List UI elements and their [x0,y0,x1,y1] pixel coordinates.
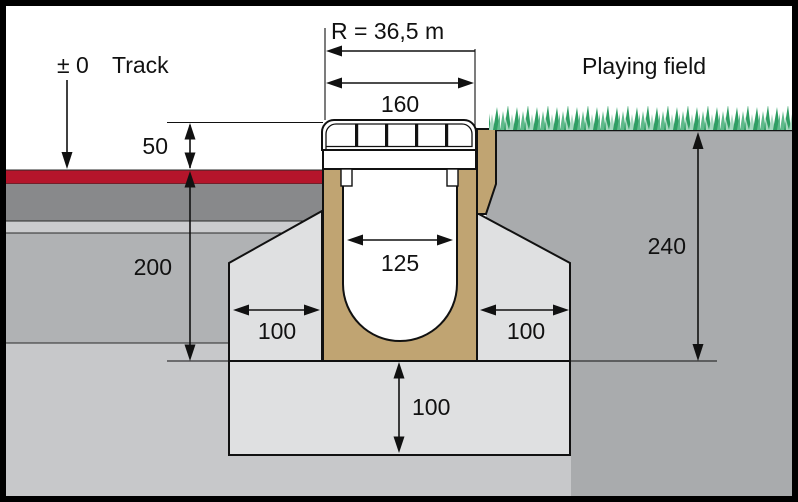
grate [322,120,476,150]
dim-160-label: 160 [381,91,419,117]
track-label: Track [112,52,169,78]
dim-50-label: 50 [142,133,168,159]
cross-section-diagram: R = 36,5 m 160 ± 0 Track 50 [0,0,798,502]
radius-label: R = 36,5 m [331,18,444,44]
dim-200-label: 200 [134,254,172,280]
grate-frame-lug [447,169,458,186]
dim-100-right-label: 100 [507,318,545,344]
grass [489,106,792,131]
track-base-layer [4,184,323,221]
grate-bar [385,124,388,147]
playing-field-label: Playing field [582,53,706,79]
diagram-canvas: R = 36,5 m 160 ± 0 Track 50 [0,0,798,502]
grate-bar [415,124,418,147]
dim-125-label: 125 [381,250,419,276]
grate-frame-lug [341,169,352,186]
track-elevation-label: ± 0 [57,52,89,78]
dim-100-left-label: 100 [258,318,296,344]
dim-240-label: 240 [648,233,686,259]
track-surface [4,170,323,184]
dim-100-bottom-label: 100 [412,394,450,420]
track-subbase-layer [4,221,323,233]
grate-bar [355,124,358,147]
grate-bar [445,124,448,147]
grate-frame [323,148,476,169]
